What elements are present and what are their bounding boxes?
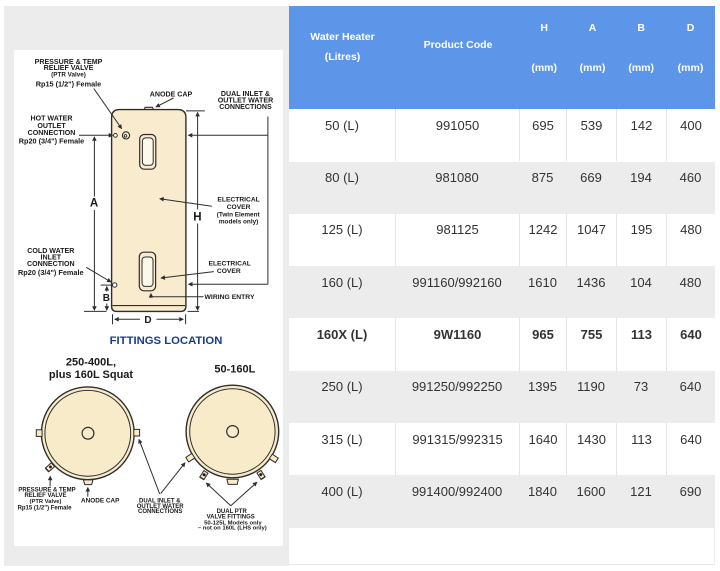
svg-text:models only): models only) [219,218,258,225]
svg-text:Rp20 (3/4") Female: Rp20 (3/4") Female [18,268,84,277]
svg-text:COVER: COVER [227,204,251,211]
svg-text:H: H [193,211,201,223]
svg-text:Rp15 (1/2") Female: Rp15 (1/2") Female [36,79,102,88]
svg-text:– not on 160L (LHS only): – not on 160L (LHS only) [198,526,267,532]
svg-text:COVER: COVER [217,268,241,275]
svg-text:ANODE CAP: ANODE CAP [81,497,120,504]
svg-text:Rp20 (3/4") Female: Rp20 (3/4") Female [19,137,85,146]
svg-text:50-160L: 50-160L [214,364,255,376]
svg-text:A: A [90,197,98,209]
svg-text:B: B [103,293,110,304]
svg-text:ELECTRICAL: ELECTRICAL [217,196,259,203]
svg-text:Rp15 (1/2") Female: Rp15 (1/2") Female [18,506,73,512]
svg-text:(PTR Valve): (PTR Valve) [51,72,86,79]
svg-text:ELECTRICAL: ELECTRICAL [209,261,251,268]
svg-text:(PTR Valve): (PTR Valve) [30,499,62,505]
svg-text:CONNECTIONS: CONNECTIONS [138,509,182,515]
svg-text:CONNECTION: CONNECTION [27,260,75,268]
svg-text:WIRING ENTRY: WIRING ENTRY [205,294,255,301]
svg-text:plus 160L Squat: plus 160L Squat [49,369,133,381]
svg-text:250-400L,: 250-400L, [66,356,116,368]
svg-text:ANODE CAP: ANODE CAP [150,91,193,99]
svg-text:FITTINGS LOCATION: FITTINGS LOCATION [110,335,223,347]
svg-text:D: D [144,315,151,326]
svg-text:CONNECTIONS: CONNECTIONS [219,103,272,111]
